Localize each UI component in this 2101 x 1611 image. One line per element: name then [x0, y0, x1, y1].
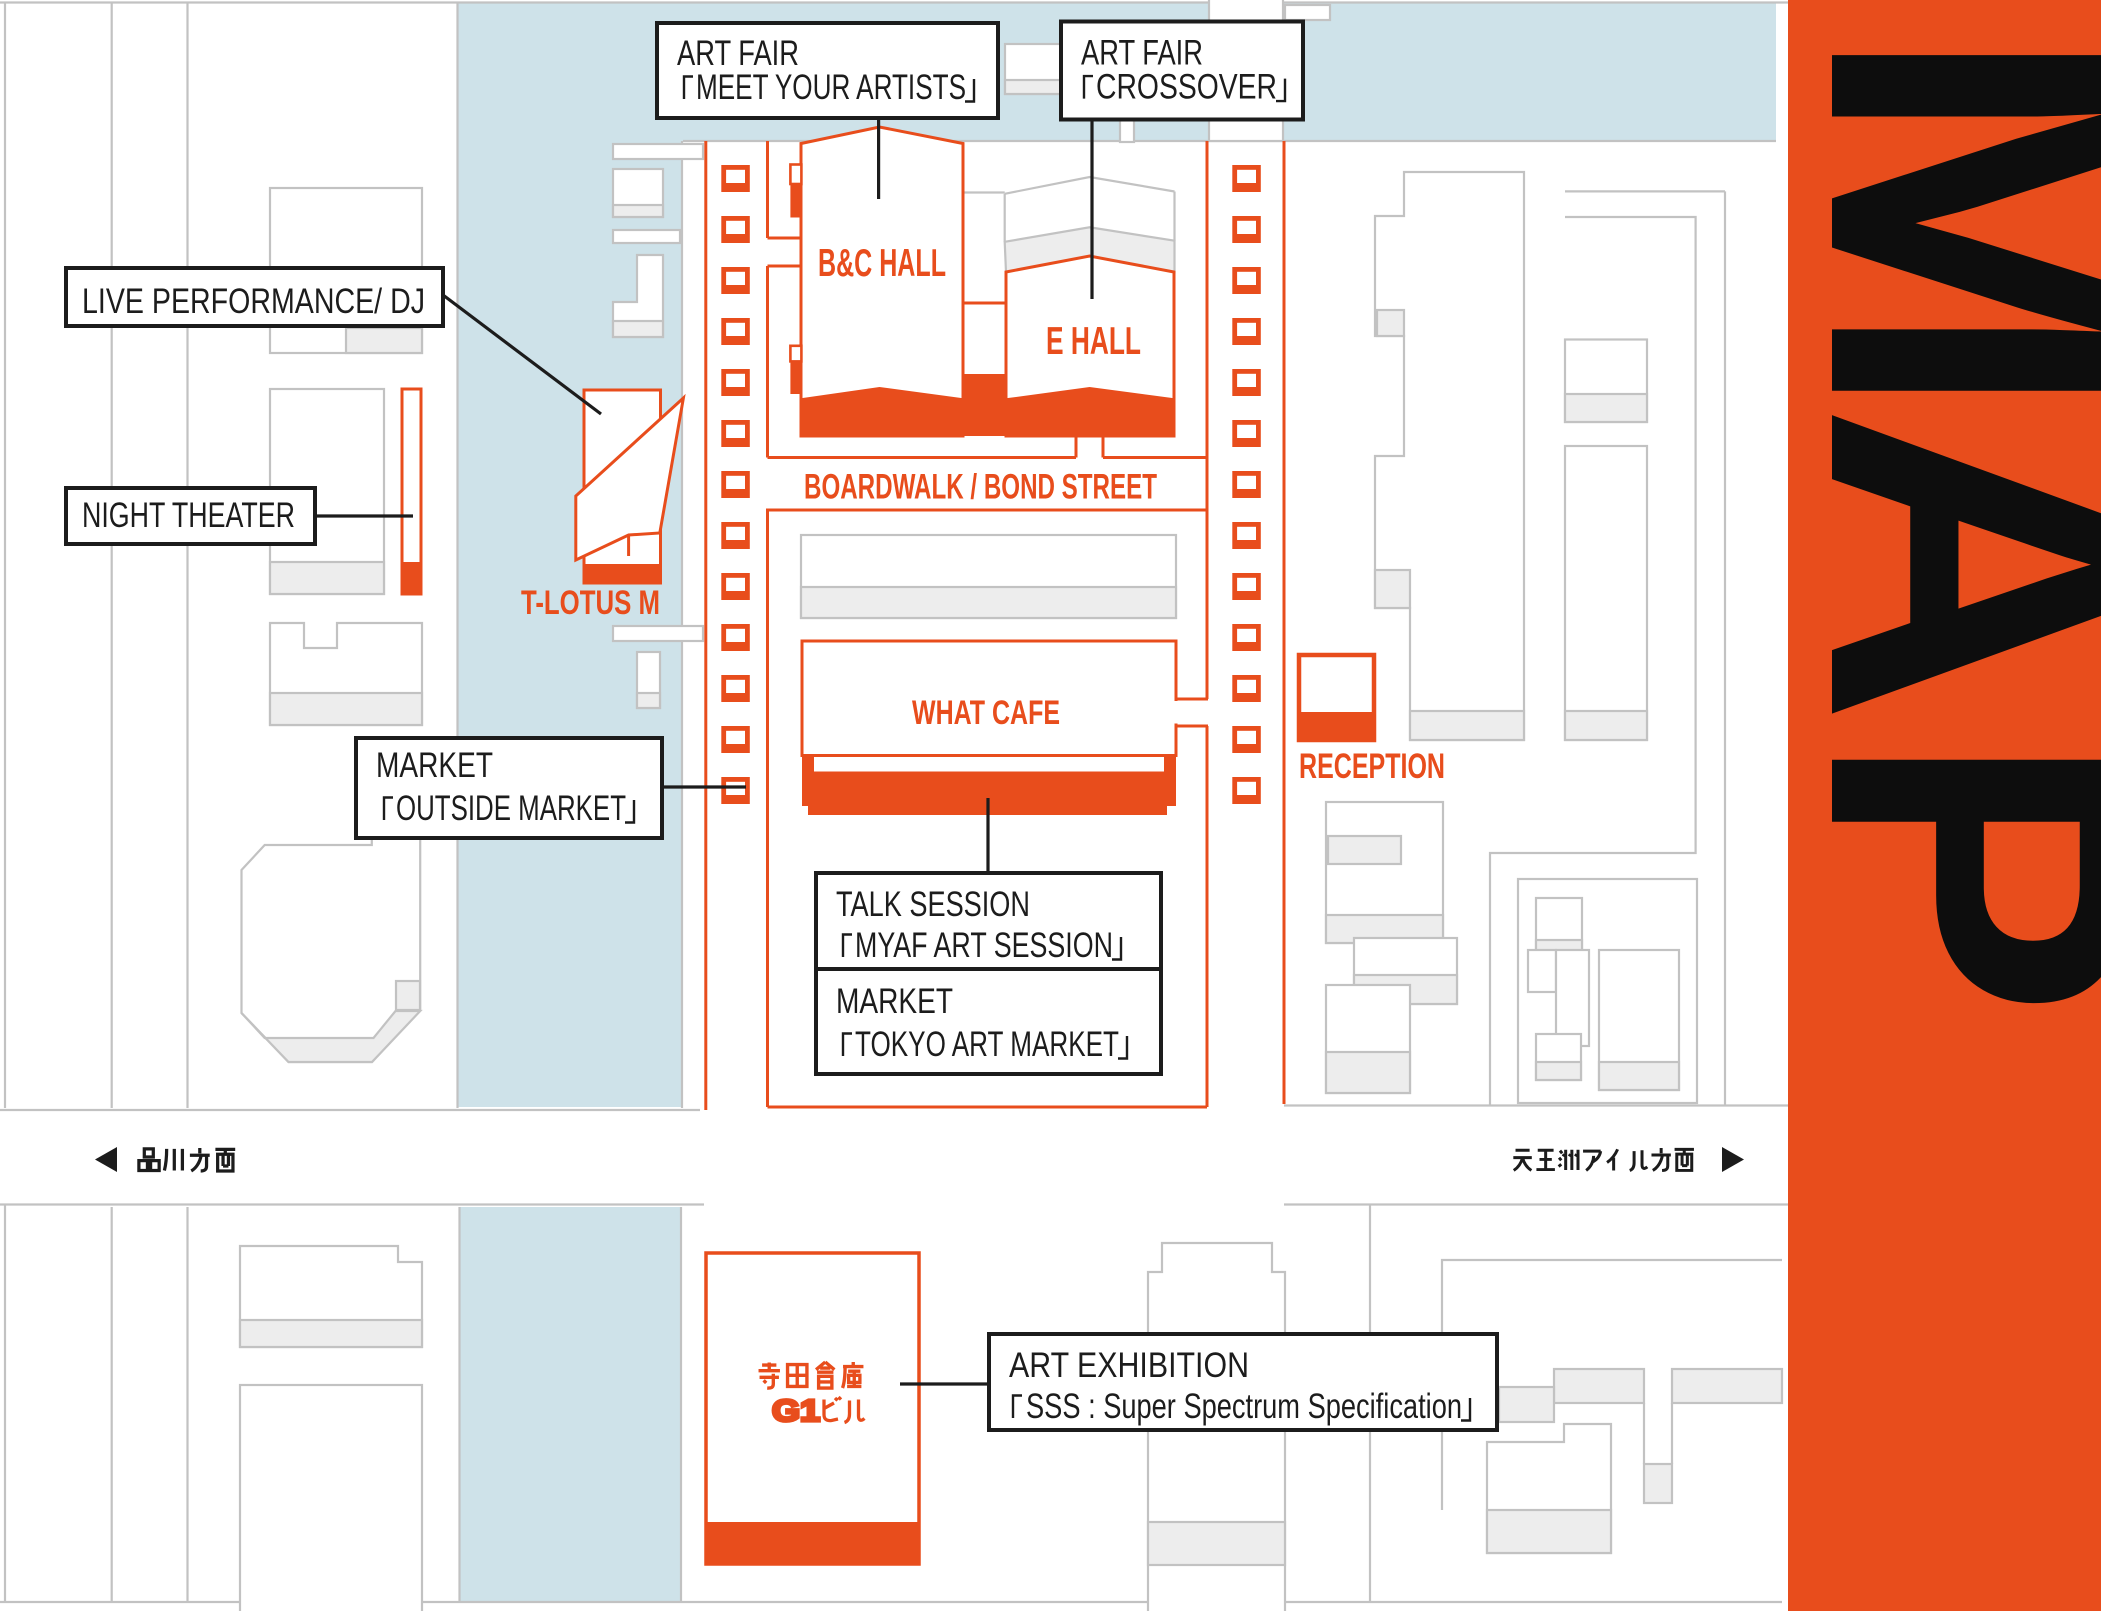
svg-text:ART EXHIBITION: ART EXHIBITION	[1009, 1346, 1249, 1385]
svg-text:LIVE PERFORMANCE/ DJ: LIVE PERFORMANCE/ DJ	[82, 282, 425, 321]
svg-text:G1: G1	[772, 1393, 820, 1428]
svg-text:MYAF ART SESSION: MYAF ART SESSION	[855, 926, 1113, 965]
svg-text:B&C HALL: B&C HALL	[818, 242, 946, 285]
svg-text:TALK SESSION: TALK SESSION	[836, 885, 1030, 924]
svg-text:RECEPTION: RECEPTION	[1299, 746, 1445, 786]
svg-text:P: P	[1740, 731, 2101, 1018]
svg-text:OUTSIDE MARKET: OUTSIDE MARKET	[396, 789, 626, 828]
svg-text:E HALL: E HALL	[1046, 320, 1141, 363]
svg-text:TOKYO ART MARKET: TOKYO ART MARKET	[855, 1025, 1119, 1064]
svg-text:NIGHT THEATER: NIGHT THEATER	[82, 496, 295, 535]
svg-text:WHAT CAFE: WHAT CAFE	[912, 694, 1060, 732]
svg-text:T-LOTUS M: T-LOTUS M	[521, 584, 660, 622]
svg-text:CROSSOVER: CROSSOVER	[1096, 68, 1277, 107]
svg-text:MEET YOUR ARTISTS: MEET YOUR ARTISTS	[696, 68, 966, 107]
svg-text:SSS : Super Spectrum Specifica: SSS : Super Spectrum Specification	[1026, 1387, 1462, 1426]
svg-text:BOARDWALK / BOND STREET: BOARDWALK / BOND STREET	[804, 468, 1157, 507]
svg-text:MARKET: MARKET	[836, 982, 953, 1021]
svg-text:A: A	[1737, 404, 2101, 725]
svg-text:MARKET: MARKET	[376, 746, 493, 785]
svg-text:M: M	[1730, 23, 2101, 423]
